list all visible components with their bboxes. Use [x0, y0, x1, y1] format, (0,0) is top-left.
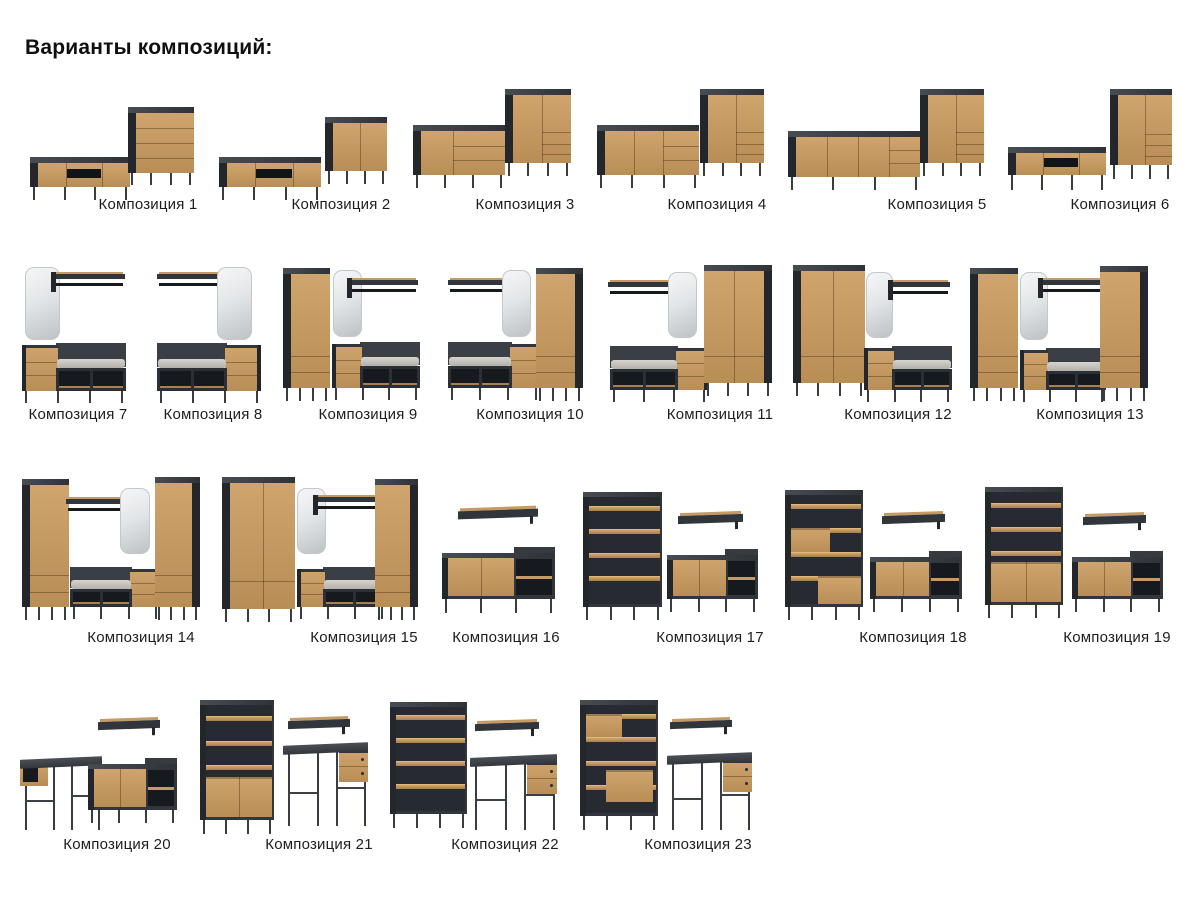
drawer-gap-line: [30, 592, 69, 593]
bench-drawer-unit: [297, 569, 325, 607]
leg: [1130, 599, 1132, 612]
leg: [150, 173, 152, 185]
leg: [630, 816, 632, 830]
leg: [183, 607, 185, 620]
leg: [566, 163, 568, 176]
leg: [1049, 390, 1051, 402]
leg: [722, 163, 724, 176]
niche-floor: [326, 602, 353, 604]
leg: [118, 810, 120, 823]
leg: [725, 599, 727, 612]
drawer-gap-line: [30, 575, 69, 576]
drawer-gap-line: [864, 363, 894, 364]
open-compartment: [516, 559, 552, 595]
leg: [791, 177, 793, 190]
leg: [25, 607, 27, 620]
desk-leg: [475, 764, 477, 830]
drawer-gap-line: [155, 575, 192, 576]
bookcase-interior: [589, 497, 660, 604]
coat-rack-rail: [890, 291, 948, 294]
leg: [222, 187, 224, 200]
wall-shelf: [475, 719, 539, 733]
cabinet-front: [227, 163, 321, 187]
cabinet-side: [283, 274, 291, 388]
coat-rack-bracket: [888, 280, 893, 300]
cabinet-side: [575, 274, 583, 388]
desk-leg: [720, 762, 722, 830]
cabinet-side: [219, 163, 227, 187]
cabinet-front: [1016, 153, 1106, 175]
leg: [203, 820, 205, 834]
bookcase-with-doors: [985, 487, 1063, 618]
bookcase-interior: [396, 707, 465, 811]
leg: [1113, 165, 1115, 179]
shoe-niche: [160, 371, 191, 388]
coat-rack-bracket: [313, 495, 318, 515]
tv-stand: [30, 157, 130, 200]
sideboard-open: [870, 557, 962, 612]
bench-shoe-box: [892, 369, 952, 390]
cabinet-front: [1118, 95, 1172, 165]
leg: [839, 383, 841, 396]
tall-cabinet: [700, 89, 764, 176]
leg: [1116, 388, 1118, 401]
cabinet-front: [1100, 272, 1140, 388]
wall-shelf-bracket: [735, 521, 738, 529]
leg: [631, 175, 633, 188]
niche-floor: [1049, 385, 1075, 387]
leg: [1023, 390, 1025, 402]
drawer-gap-line: [339, 766, 368, 767]
coat-rack-shelf: [347, 280, 418, 285]
tv-stand: [1008, 147, 1106, 190]
desk-drawer-box: [527, 762, 557, 794]
shoe-niche: [924, 372, 950, 387]
drawer-handle: [745, 768, 748, 771]
wood-insert-box: [818, 576, 861, 604]
drawer-gap-line: [889, 163, 920, 164]
cabinet-front: [291, 274, 330, 388]
leg: [364, 171, 366, 184]
coat-rack-shelf: [51, 274, 125, 279]
bench-cushion: [1047, 362, 1105, 371]
bench-cushion: [611, 360, 677, 369]
leg: [663, 175, 665, 188]
wardrobe: [22, 479, 69, 620]
leg: [694, 175, 696, 188]
wall-shelf-fascia: [882, 514, 945, 524]
compositions-catalog: Варианты композиций: Композиция 1Компози…: [0, 0, 1200, 900]
leg: [947, 390, 949, 402]
open-niche: [256, 169, 292, 178]
sideboard-doors: [94, 769, 146, 807]
leg: [653, 816, 655, 830]
leg: [312, 388, 314, 401]
two-door-wardrobe: [793, 265, 865, 396]
wall-shelf-fascia: [475, 722, 539, 731]
leg: [1011, 605, 1013, 618]
drawer-unit-top: [225, 345, 261, 348]
desk-leg: [336, 752, 338, 826]
drawer-gap-line: [297, 583, 325, 584]
door-gap-line: [481, 558, 482, 596]
bench-cushion: [57, 359, 125, 368]
door-top-edge: [991, 562, 1061, 564]
desk-stretcher: [672, 798, 701, 800]
bench-shoe-box: [1046, 371, 1106, 390]
leg: [858, 607, 860, 620]
leg: [269, 820, 271, 834]
drawer-unit-side: [297, 569, 301, 607]
leg: [539, 388, 541, 401]
leg: [1011, 175, 1013, 190]
hallway-bench: [157, 343, 261, 403]
leg: [268, 609, 270, 622]
coat-rack-rail: [53, 283, 123, 286]
leg: [565, 388, 567, 401]
wall-shelf-fascia: [678, 514, 743, 524]
coat-rack: [608, 280, 674, 296]
cabinet-front: [421, 131, 505, 175]
bench-shoe-box: [448, 366, 512, 388]
drawer-gap-line: [155, 592, 192, 593]
bookcase-interior: [586, 705, 656, 813]
hallway-bench: [448, 342, 540, 400]
leg: [439, 814, 441, 828]
leg: [33, 187, 35, 200]
leg: [390, 607, 392, 620]
two-door-cabinet: [325, 117, 387, 184]
leg: [158, 607, 160, 620]
drawer-gap-line: [889, 150, 920, 151]
open-compartment: [1133, 563, 1160, 595]
composition-label: Композиция 5: [888, 196, 987, 213]
cabinet-side: [192, 483, 200, 607]
wall-shelf-bracket: [530, 516, 533, 524]
leg: [610, 607, 612, 620]
wood-shelf: [206, 765, 272, 770]
cabinet-front: [38, 163, 130, 187]
leg: [703, 163, 705, 176]
mirror: [668, 272, 697, 338]
leg: [811, 607, 813, 620]
composition-scene: [968, 258, 1200, 428]
return-niche: [23, 767, 38, 782]
leg: [131, 173, 133, 185]
leg: [698, 599, 700, 612]
shoe-niche: [895, 372, 921, 387]
wall-shelf-fascia: [288, 719, 350, 729]
coat-rack-rail: [349, 289, 416, 292]
door-gap-line: [102, 163, 103, 187]
bench-cushion: [158, 359, 226, 368]
sideboard-wide: [597, 125, 699, 188]
drawer-gap-line: [1145, 156, 1172, 157]
cabinet-side: [22, 485, 30, 607]
composition-label: Композиция 16: [452, 629, 560, 646]
drawer-gap-line: [864, 376, 894, 377]
coat-rack-rail: [159, 283, 225, 286]
leg: [796, 383, 798, 396]
cabinet-side: [30, 163, 38, 187]
composition-label: Композиция 22: [451, 836, 559, 853]
leg: [121, 391, 123, 403]
mirror: [120, 488, 150, 554]
bench-drawer-unit: [225, 345, 261, 391]
bookcase-with-inserts: [580, 700, 658, 830]
open-compartment: [728, 561, 755, 595]
drawer-handle: [361, 758, 364, 761]
wood-shelf: [148, 787, 174, 790]
cabinet-front: [704, 271, 764, 383]
door-gap-line: [1079, 153, 1080, 175]
leg: [920, 390, 922, 402]
hallway-bench: [70, 567, 160, 619]
wall-shelf-bracket: [937, 521, 940, 529]
leg: [727, 383, 729, 396]
wall-shelf: [458, 506, 538, 522]
desk-stretcher: [288, 792, 317, 794]
mirror: [217, 267, 252, 340]
wood-shelf: [1133, 578, 1160, 581]
bookcase: [583, 492, 662, 620]
leg: [973, 388, 975, 401]
drawer-gap-line: [542, 154, 571, 155]
leg: [57, 391, 59, 403]
door-gap-line: [734, 271, 735, 383]
cabinet-side: [764, 271, 772, 383]
leg: [707, 383, 709, 396]
wood-shelf: [589, 553, 660, 558]
bench-drawer-unit: [332, 344, 362, 388]
door-gap-line: [239, 777, 240, 817]
tall-cabinet: [920, 89, 984, 176]
wood-shelf: [791, 504, 861, 509]
leg: [256, 391, 258, 403]
leg: [600, 175, 602, 188]
bench-drawer-unit: [1020, 350, 1048, 390]
leg: [444, 175, 446, 188]
bookcase-interior: [206, 705, 272, 817]
drawer-gap-line: [291, 372, 330, 373]
open-niche: [67, 169, 102, 178]
composition-tile: Композиция 6: [1000, 85, 1200, 218]
leg: [382, 171, 384, 184]
leg: [578, 388, 580, 401]
sideboard-open: [88, 764, 177, 823]
leg: [247, 609, 249, 622]
leg: [479, 388, 481, 400]
bench-shoe-box: [70, 589, 132, 607]
leg: [253, 187, 255, 200]
leg: [195, 607, 197, 620]
leg: [873, 599, 875, 612]
desk-leg: [505, 764, 507, 830]
drawer-gap-line: [1145, 134, 1172, 135]
shoe-niche: [59, 371, 90, 388]
sideboard-doors: [876, 562, 929, 596]
leg: [38, 607, 40, 620]
leg: [767, 383, 769, 396]
wardrobe: [1100, 266, 1148, 401]
mirror: [502, 270, 531, 337]
wall-shelf-bracket: [342, 726, 345, 734]
coat-rack-bracket: [347, 278, 352, 298]
drawer-unit-side: [864, 348, 868, 390]
niche-floor: [613, 385, 643, 387]
drawer-gap-line: [723, 776, 752, 777]
niche-floor: [895, 385, 921, 387]
wood-shelf: [586, 737, 656, 742]
leg: [1071, 175, 1073, 190]
leg: [988, 605, 990, 618]
composition-label: Композиция 3: [476, 196, 575, 213]
shoe-niche: [363, 369, 389, 385]
drawer-unit-side: [1020, 350, 1024, 390]
desk-stretcher: [720, 794, 748, 796]
niche-floor: [160, 386, 191, 388]
desk-stretcher: [524, 794, 553, 796]
open-compartment: [931, 563, 959, 595]
leg: [1075, 599, 1077, 612]
cabinet-side: [1110, 95, 1118, 165]
leg: [388, 388, 390, 400]
door-gap-line: [1145, 95, 1146, 165]
niche-floor: [363, 383, 389, 385]
cabinet-front: [978, 274, 1018, 388]
drawer-handle: [550, 770, 553, 773]
leg: [225, 820, 227, 834]
composition-label: Композиция 10: [476, 406, 584, 423]
drawer-unit-top: [864, 348, 894, 351]
leg: [64, 607, 66, 620]
drawer-unit-top: [22, 345, 58, 348]
composition-label: Композиция 13: [1036, 406, 1144, 423]
shoe-niche: [613, 372, 643, 387]
sideboard-doors: [673, 560, 726, 596]
door-gap-line: [634, 131, 635, 175]
cabinet-front: [230, 483, 295, 609]
leg: [100, 607, 102, 619]
wall-shelf-bracket: [531, 728, 534, 736]
door-gap-line: [889, 137, 890, 177]
cabinet-side: [700, 95, 708, 163]
leg: [923, 163, 925, 176]
niche-floor: [73, 602, 100, 604]
desk: [470, 756, 557, 830]
door-gap-line: [360, 123, 361, 171]
coat-rack-bracket: [51, 272, 56, 292]
leg: [299, 388, 301, 401]
composition-label: Композиция 20: [63, 836, 171, 853]
bench-drawer-unit: [864, 348, 894, 390]
leg: [170, 607, 172, 620]
cabinet-side: [788, 137, 796, 177]
desk-leg: [53, 766, 55, 830]
bench-shoe-box: [610, 369, 678, 390]
leg: [416, 814, 418, 828]
drawer-gap-line: [801, 356, 865, 357]
cabinet-side: [410, 485, 418, 607]
hallway-bench: [1020, 348, 1106, 402]
leg: [335, 388, 337, 400]
desk-leg: [524, 764, 526, 830]
desk-stretcher: [25, 800, 53, 802]
cabinet-side: [597, 131, 605, 175]
coat-rack-shelf: [888, 282, 950, 287]
bookcase-interior: [991, 492, 1061, 602]
leg: [1167, 165, 1169, 179]
wood-shelf: [586, 761, 656, 766]
tv-stand: [219, 157, 321, 200]
niche-floor: [392, 383, 418, 385]
leg: [362, 388, 364, 400]
leg: [957, 599, 959, 612]
wall-shelf-bracket: [152, 727, 155, 735]
niche-floor: [59, 386, 90, 388]
coat-rack: [347, 278, 418, 294]
drawer-gap-line: [291, 356, 330, 357]
wall-shelf-bracket: [1138, 522, 1141, 530]
drawer-gap-line: [736, 144, 764, 145]
drawer-unit-side: [257, 345, 261, 391]
door-gap-line: [833, 271, 834, 383]
leg: [508, 163, 510, 176]
drawer-chest: [128, 107, 194, 185]
door-gap-line: [120, 769, 121, 807]
composition-label: Композиция 23: [644, 836, 752, 853]
composition-scene: [985, 473, 1200, 651]
cabinet-front: [605, 131, 699, 175]
door-gap-line: [1026, 562, 1027, 602]
wall-shelf-fascia: [1083, 515, 1146, 525]
drawer-gap-line: [332, 373, 362, 374]
composition-label: Композиция 2: [292, 196, 391, 213]
wood-shelf: [991, 527, 1061, 532]
bookcase-with-inserts: [785, 490, 863, 620]
drawer-unit-side: [332, 344, 336, 388]
composition-label: Композиция 1: [99, 196, 198, 213]
niche-floor: [646, 385, 676, 387]
leg: [170, 173, 172, 185]
desk-leg: [701, 762, 703, 830]
bookcase-interior: [791, 495, 861, 604]
cabinet-front: [333, 123, 387, 171]
leg: [393, 814, 395, 828]
leg: [189, 173, 191, 185]
insert-edge: [586, 714, 622, 716]
leg: [583, 816, 585, 830]
wood-insert-box: [791, 528, 830, 552]
wood-shelf: [991, 551, 1061, 556]
drawer-gap-line: [22, 375, 58, 376]
drawer-unit-top: [1020, 350, 1048, 353]
cabinet-front: [513, 95, 571, 163]
leg: [192, 391, 194, 403]
leg: [915, 177, 917, 190]
leg: [552, 388, 554, 401]
leg: [942, 163, 944, 176]
composition-label: Композиция 21: [265, 836, 373, 853]
leg: [247, 820, 249, 834]
bench-drawer-unit: [22, 345, 58, 391]
leg: [1143, 388, 1145, 401]
drawer-gap-line: [536, 356, 575, 357]
wood-insert-box: [606, 770, 654, 802]
drawer-gap-line: [297, 594, 325, 595]
two-door-wardrobe: [222, 477, 295, 622]
wood-shelf: [589, 576, 660, 581]
